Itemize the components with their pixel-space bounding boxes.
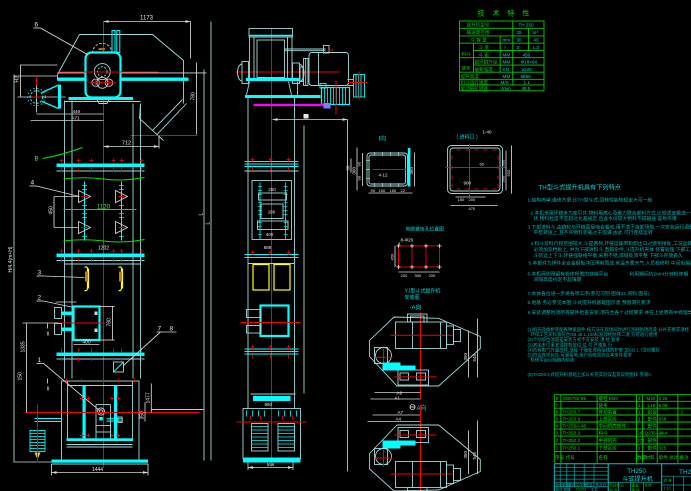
svg-text:3: 3: [38, 270, 42, 277]
svg-text:KN: KN: [503, 67, 509, 72]
svg-text:1.1: 1.1: [524, 80, 531, 85]
svg-text:YJ型斗式提升机: YJ型斗式提升机: [405, 288, 441, 295]
svg-text:r/min: r/min: [501, 86, 512, 91]
svg-text:1477: 1477: [146, 392, 152, 403]
svg-text:180: 180: [268, 210, 276, 215]
svg-text:780: 780: [107, 318, 113, 327]
svg-text:技 术 特 性: 技 术 特 性: [478, 9, 533, 18]
svg-text:TH型斗式提升机具有下列特点: TH型斗式提升机具有下列特点: [539, 184, 622, 192]
svg-text:l: l: [505, 45, 506, 50]
svg-text:2: 2: [38, 295, 42, 302]
svg-text:MM: MM: [503, 52, 511, 57]
svg-text:TH 250: TH 250: [519, 23, 535, 28]
svg-text:重量: 重量: [632, 483, 640, 488]
svg-text:批 准: 批 准: [664, 478, 673, 483]
svg-text:1: 1: [556, 446, 559, 451]
svg-text:备注: 备注: [680, 454, 690, 461]
svg-text:1444: 1444: [92, 467, 103, 473]
svg-text:470: 470: [469, 206, 476, 211]
svg-text:5: 5: [556, 417, 559, 422]
svg-text:4-12: 4-12: [379, 173, 389, 178]
svg-text:TH250.1: TH250.1: [563, 446, 581, 451]
svg-text:4.料斗装料行程范围较大,斗提两侧,环链运输带和卸出口过渡衔: 4.料斗装料行程范围较大,斗提两侧,环链运输带和卸出口过渡衔接处,工况运转过分繁…: [531, 240, 691, 247]
svg-text:838: 838: [659, 417, 667, 422]
svg-text:MM: MM: [503, 74, 511, 79]
svg-text:5.本部件为焊件全合金钢板冲压焊制而成 常温多雾天气 人员检: 5.本部件为焊件全合金钢板冲压焊制而成 常温多雾天气 人员检修时 中间衔接期须装…: [529, 260, 691, 267]
svg-text:150: 150: [390, 188, 397, 193]
svg-text:比例: 比例: [645, 483, 653, 488]
svg-text:( 进料口 ): ( 进料口 ): [457, 134, 478, 141]
svg-text:A7: A7: [398, 410, 404, 415]
svg-text:链条: 链条: [599, 402, 609, 409]
svg-text:300: 300: [415, 273, 422, 278]
svg-text:8850: 8850: [521, 74, 532, 79]
svg-text:破断强度: 破断强度: [475, 66, 494, 73]
svg-text:阶段标记: 阶段标记: [610, 483, 625, 488]
svg-text:状,物料粒度不宜超过允差规定,且含水份较大物料不得输送 容易: 状,物料粒度不宜超过允差规定,且含水份较大物料不得输送 容易作堵: [534, 215, 677, 222]
svg-text:部件: 部件: [648, 423, 658, 430]
svg-text:单件 总计: 单件 总计: [659, 454, 679, 461]
svg-text:1335: 1335: [21, 341, 27, 352]
svg-text:60: 60: [480, 162, 485, 167]
svg-text:25: 25: [517, 30, 523, 35]
svg-text:平稳转送上,且不许物料装载过于饱满,由此 可行连续运转: 平稳转送上,且不许物料装载过于饱满,由此 可行连续运转: [534, 229, 653, 236]
svg-text:A71: A71: [72, 116, 81, 121]
svg-text:1: 1: [638, 446, 641, 451]
svg-text:7: 7: [158, 326, 162, 333]
svg-text:150: 150: [458, 197, 465, 202]
svg-text:L18: L18: [648, 403, 656, 408]
svg-text:900: 900: [464, 181, 472, 186]
svg-text:≥320: ≥320: [522, 67, 533, 72]
svg-text:1: 1: [638, 417, 641, 422]
svg-text:下部区段: 下部区段: [599, 445, 618, 452]
svg-text:545: 545: [472, 451, 477, 459]
svg-text:4: 4: [556, 424, 559, 429]
svg-text:签名: 签名: [586, 482, 594, 487]
svg-text:4: 4: [638, 396, 641, 401]
svg-text:2: 2: [556, 438, 559, 443]
svg-text:驱动链轮转速: 驱动链轮转速: [461, 85, 489, 92]
svg-text:2台: 2台: [637, 437, 645, 444]
svg-text:提升高度: 提升高度: [461, 73, 480, 80]
svg-text:1.结构简单,维修方便,比TH型斗式,回转性能较稳定大可一般: 1.结构简单,维修方便,比TH型斗式,回转性能较稳定大可一般: [528, 197, 653, 204]
svg-text:II: II: [47, 387, 51, 393]
svg-text:L: L: [206, 222, 212, 225]
svg-text:-A向: -A向: [410, 304, 422, 312]
svg-text:校核: 校核: [564, 487, 572, 491]
svg-text:250: 250: [268, 187, 276, 192]
svg-text:150: 150: [18, 372, 24, 381]
svg-text:共 张: 共 张: [610, 487, 619, 491]
svg-text:0.25: 0.25: [659, 396, 668, 401]
svg-text:B: B: [35, 157, 39, 163]
svg-text:mm: mm: [503, 38, 511, 43]
svg-text:400: 400: [266, 232, 274, 237]
svg-text:斗 容 量: 斗 容 量: [471, 37, 488, 44]
svg-text:输送量范围: 输送量范围: [467, 29, 490, 36]
svg-text:1:10: 1:10: [664, 487, 671, 491]
svg-text:6: 6: [35, 22, 39, 29]
svg-text:025: 025: [659, 446, 667, 451]
svg-text:L: L: [199, 213, 205, 216]
svg-text:150: 150: [379, 188, 386, 193]
svg-text:M/S: M/S: [501, 80, 509, 85]
svg-text:20.4: 20.4: [659, 431, 668, 436]
svg-text:1-40: 1-40: [483, 130, 493, 135]
svg-text:(8)TH250斗式提升机基础上加以补充实验误差及说明图样: (8)TH250斗式提升机基础上加以补充实验误差及说明图样 参阅0.: [528, 371, 652, 378]
svg-text:设计: 设计: [556, 487, 564, 491]
svg-text:2: 2: [681, 410, 684, 415]
svg-text:556: 556: [267, 462, 275, 467]
svg-text:序号 代号: 序号 代号: [555, 454, 575, 461]
svg-text:安装图: 安装图: [405, 294, 420, 301]
svg-text:I向: I向: [379, 135, 387, 143]
svg-text:TH250.2: TH250.2: [563, 438, 581, 443]
svg-text:8.地基 务必参见本图 斗式提升机基础图示意 预留洞孔要求: 8.地基 务必参见本图 斗式提升机基础图示意 预留洞孔要求: [528, 299, 651, 306]
svg-text:40: 40: [534, 38, 540, 43]
svg-text:90: 90: [371, 188, 376, 193]
svg-text:工艺: 工艺: [591, 487, 599, 491]
svg-text:888: 888: [264, 245, 272, 250]
svg-text:22: 22: [401, 188, 406, 193]
svg-text:3: 3: [556, 431, 559, 436]
svg-text:m³: m³: [533, 30, 539, 35]
svg-text:300: 300: [501, 159, 506, 166]
svg-text:400: 400: [82, 340, 91, 346]
svg-text:350: 350: [463, 352, 468, 360]
svg-text:上部区段: 上部区段: [599, 416, 618, 423]
svg-text:H/4.4(m+H): H/4.4(m+H): [8, 246, 14, 272]
svg-text:A4: A4: [396, 417, 402, 422]
svg-text:组合: 组合: [648, 409, 658, 416]
svg-text:TH250: TH250: [627, 468, 646, 475]
svg-text:450: 450: [390, 253, 395, 260]
svg-text:3: 3: [517, 45, 520, 50]
svg-text:8-Φ20: 8-Φ20: [401, 238, 414, 243]
svg-text:450: 450: [523, 52, 531, 57]
svg-text:200: 200: [401, 273, 408, 278]
svg-text:1: 1: [638, 410, 641, 415]
svg-text:更改文件号: 更改文件号: [569, 482, 587, 487]
svg-text:第 张: 第 张: [632, 487, 641, 491]
svg-text:MM: MM: [503, 60, 511, 65]
svg-text:360: 360: [352, 166, 357, 174]
svg-text:8: 8: [170, 326, 174, 333]
svg-text:部件: 部件: [648, 437, 658, 444]
svg-text:6.本机两侧预留有检修所需的扶梯平台: 6.本机两侧预留有检修所需的扶梯平台: [528, 271, 609, 278]
svg-text:712: 712: [122, 141, 131, 147]
svg-text:6: 6: [556, 410, 559, 415]
svg-text:H2: H2: [15, 76, 21, 83]
svg-text:350: 350: [463, 450, 468, 458]
svg-text:TH2: TH2: [679, 469, 691, 476]
svg-text:600: 600: [506, 169, 511, 176]
svg-text:850: 850: [265, 402, 273, 407]
svg-text:1: 1: [638, 403, 641, 408]
svg-text:4: 4: [31, 180, 35, 187]
svg-text:料斗: 料斗: [599, 430, 609, 437]
svg-text:中间机壳部件: 中间机壳部件: [599, 423, 627, 430]
svg-text:450: 450: [49, 206, 55, 215]
svg-text:年月日: 年月日: [596, 482, 607, 487]
svg-text:斗式提升机: 斗式提升机: [622, 475, 654, 483]
svg-text:780: 780: [191, 92, 197, 101]
svg-text:料斗: 料斗: [462, 51, 472, 58]
svg-text:部件: 部件: [648, 445, 658, 452]
svg-text:M20: M20: [647, 396, 656, 401]
svg-text:360: 360: [409, 166, 414, 174]
svg-text:中部机壳: 中部机壳: [599, 437, 618, 444]
svg-text:TH250.7: TH250.7: [563, 410, 581, 415]
svg-text:间隔高度约定不超限期: 间隔高度约定不超限期: [534, 276, 582, 283]
svg-text:材料: 材料: [646, 454, 656, 461]
svg-text:圆环链外径: 圆环链外径: [475, 59, 498, 66]
svg-text:7: 7: [556, 403, 559, 408]
svg-text:II: II: [47, 332, 51, 338]
svg-text:GB5782-86: GB5782-86: [563, 396, 587, 401]
svg-text:A向: A向: [417, 404, 427, 412]
svg-text:300: 300: [501, 175, 506, 182]
svg-text:200: 200: [429, 273, 436, 278]
svg-text:449: 449: [73, 109, 81, 114]
svg-text:350: 350: [140, 411, 146, 420]
svg-text:名称: 名称: [599, 454, 609, 461]
svg-text:链条: 链条: [462, 65, 472, 72]
svg-text:TH250A-4B: TH250A-4B: [563, 424, 587, 429]
svg-text:螺栓 M20: 螺栓 M20: [599, 395, 619, 402]
svg-text:2.本机采用环链条为牵引件,物料用离心及重力联合卸料方式,比: 2.本机采用环链条为牵引件,物料用离心及重力联合卸料方式,比较适宜输送一般粉状及…: [531, 210, 691, 217]
svg-text:50: 50: [346, 165, 351, 171]
svg-text:545: 545: [472, 353, 477, 361]
svg-text:Φ18×64: Φ18×64: [521, 60, 538, 65]
svg-text:部件: 部件: [648, 416, 658, 423]
svg-text:28: 28: [637, 431, 643, 436]
svg-text:提升机型号: 提升机型号: [467, 22, 490, 29]
svg-text:TH250.3: TH250.3: [563, 431, 581, 436]
svg-text:必须加装档板上, 并为下部进料斗,直卸杂件,斗提升机壳体 装: 必须加装档板上, 并为下部进料斗,直卸杂件,斗提升机壳体 装置处理 下部工具衔接…: [534, 246, 691, 253]
svg-text:1202: 1202: [98, 246, 109, 252]
svg-text:9.06: 9.06: [659, 403, 668, 408]
svg-text:200: 200: [469, 197, 476, 202]
svg-text:TH250: TH250: [576, 488, 587, 491]
svg-text:9.安装调整时须所有部件检查安装,须符合各个过程要求 并在上: 9.安装调整时须所有部件检查安装,须符合各个过程要求 并在上述原有中修理异物检修…: [528, 309, 691, 316]
svg-text:A1: A1: [395, 396, 401, 401]
svg-text:1120: 1120: [97, 205, 111, 211]
svg-text:30: 30: [517, 38, 523, 43]
svg-text:7.本体各位进一步将各项工序(参见习别 图样31 资料 图号: 7.本体各位进一步将各项工序(参见习别 图样31 资料 图号): [528, 290, 650, 297]
svg-text:利用期间约2M/4分钟检修期: 利用期间约2M/4分钟检修期: [630, 271, 689, 278]
svg-text:3.下部进料斗,由链轮与环链直接啮合着动,用不适于自卸场地,: 3.下部进料斗,由链轮与环链直接啮合着动,用不适于自卸场地,一次安装运行调整好,…: [528, 224, 691, 231]
svg-text:斗 宽: 斗 宽: [479, 44, 490, 51]
svg-text:8: 8: [556, 396, 559, 401]
svg-text:斗 距: 斗 距: [479, 52, 490, 57]
svg-text:1173: 1173: [140, 16, 154, 22]
svg-text:检修平台间隔期内验收: 检修平台间隔期内验收: [531, 357, 576, 364]
svg-text:地脚螺栓孔位置图: 地脚螺栓孔位置图: [406, 226, 445, 233]
svg-text:传动装置: 传动装置: [599, 409, 618, 416]
svg-text:1: 1: [38, 357, 42, 364]
svg-text:1.3: 1.3: [533, 45, 540, 50]
svg-text:TH250.6: TH250.6: [563, 417, 581, 422]
svg-text:斗装运上下斗,环链强联络平衡,采用不锈,焊缝处须平整 下部斗: 斗装运上下斗,环链强联络平衡,采用不锈,焊缝处须平整 下部斗存放良久: [534, 252, 683, 259]
svg-text:48.5: 48.5: [522, 86, 531, 91]
